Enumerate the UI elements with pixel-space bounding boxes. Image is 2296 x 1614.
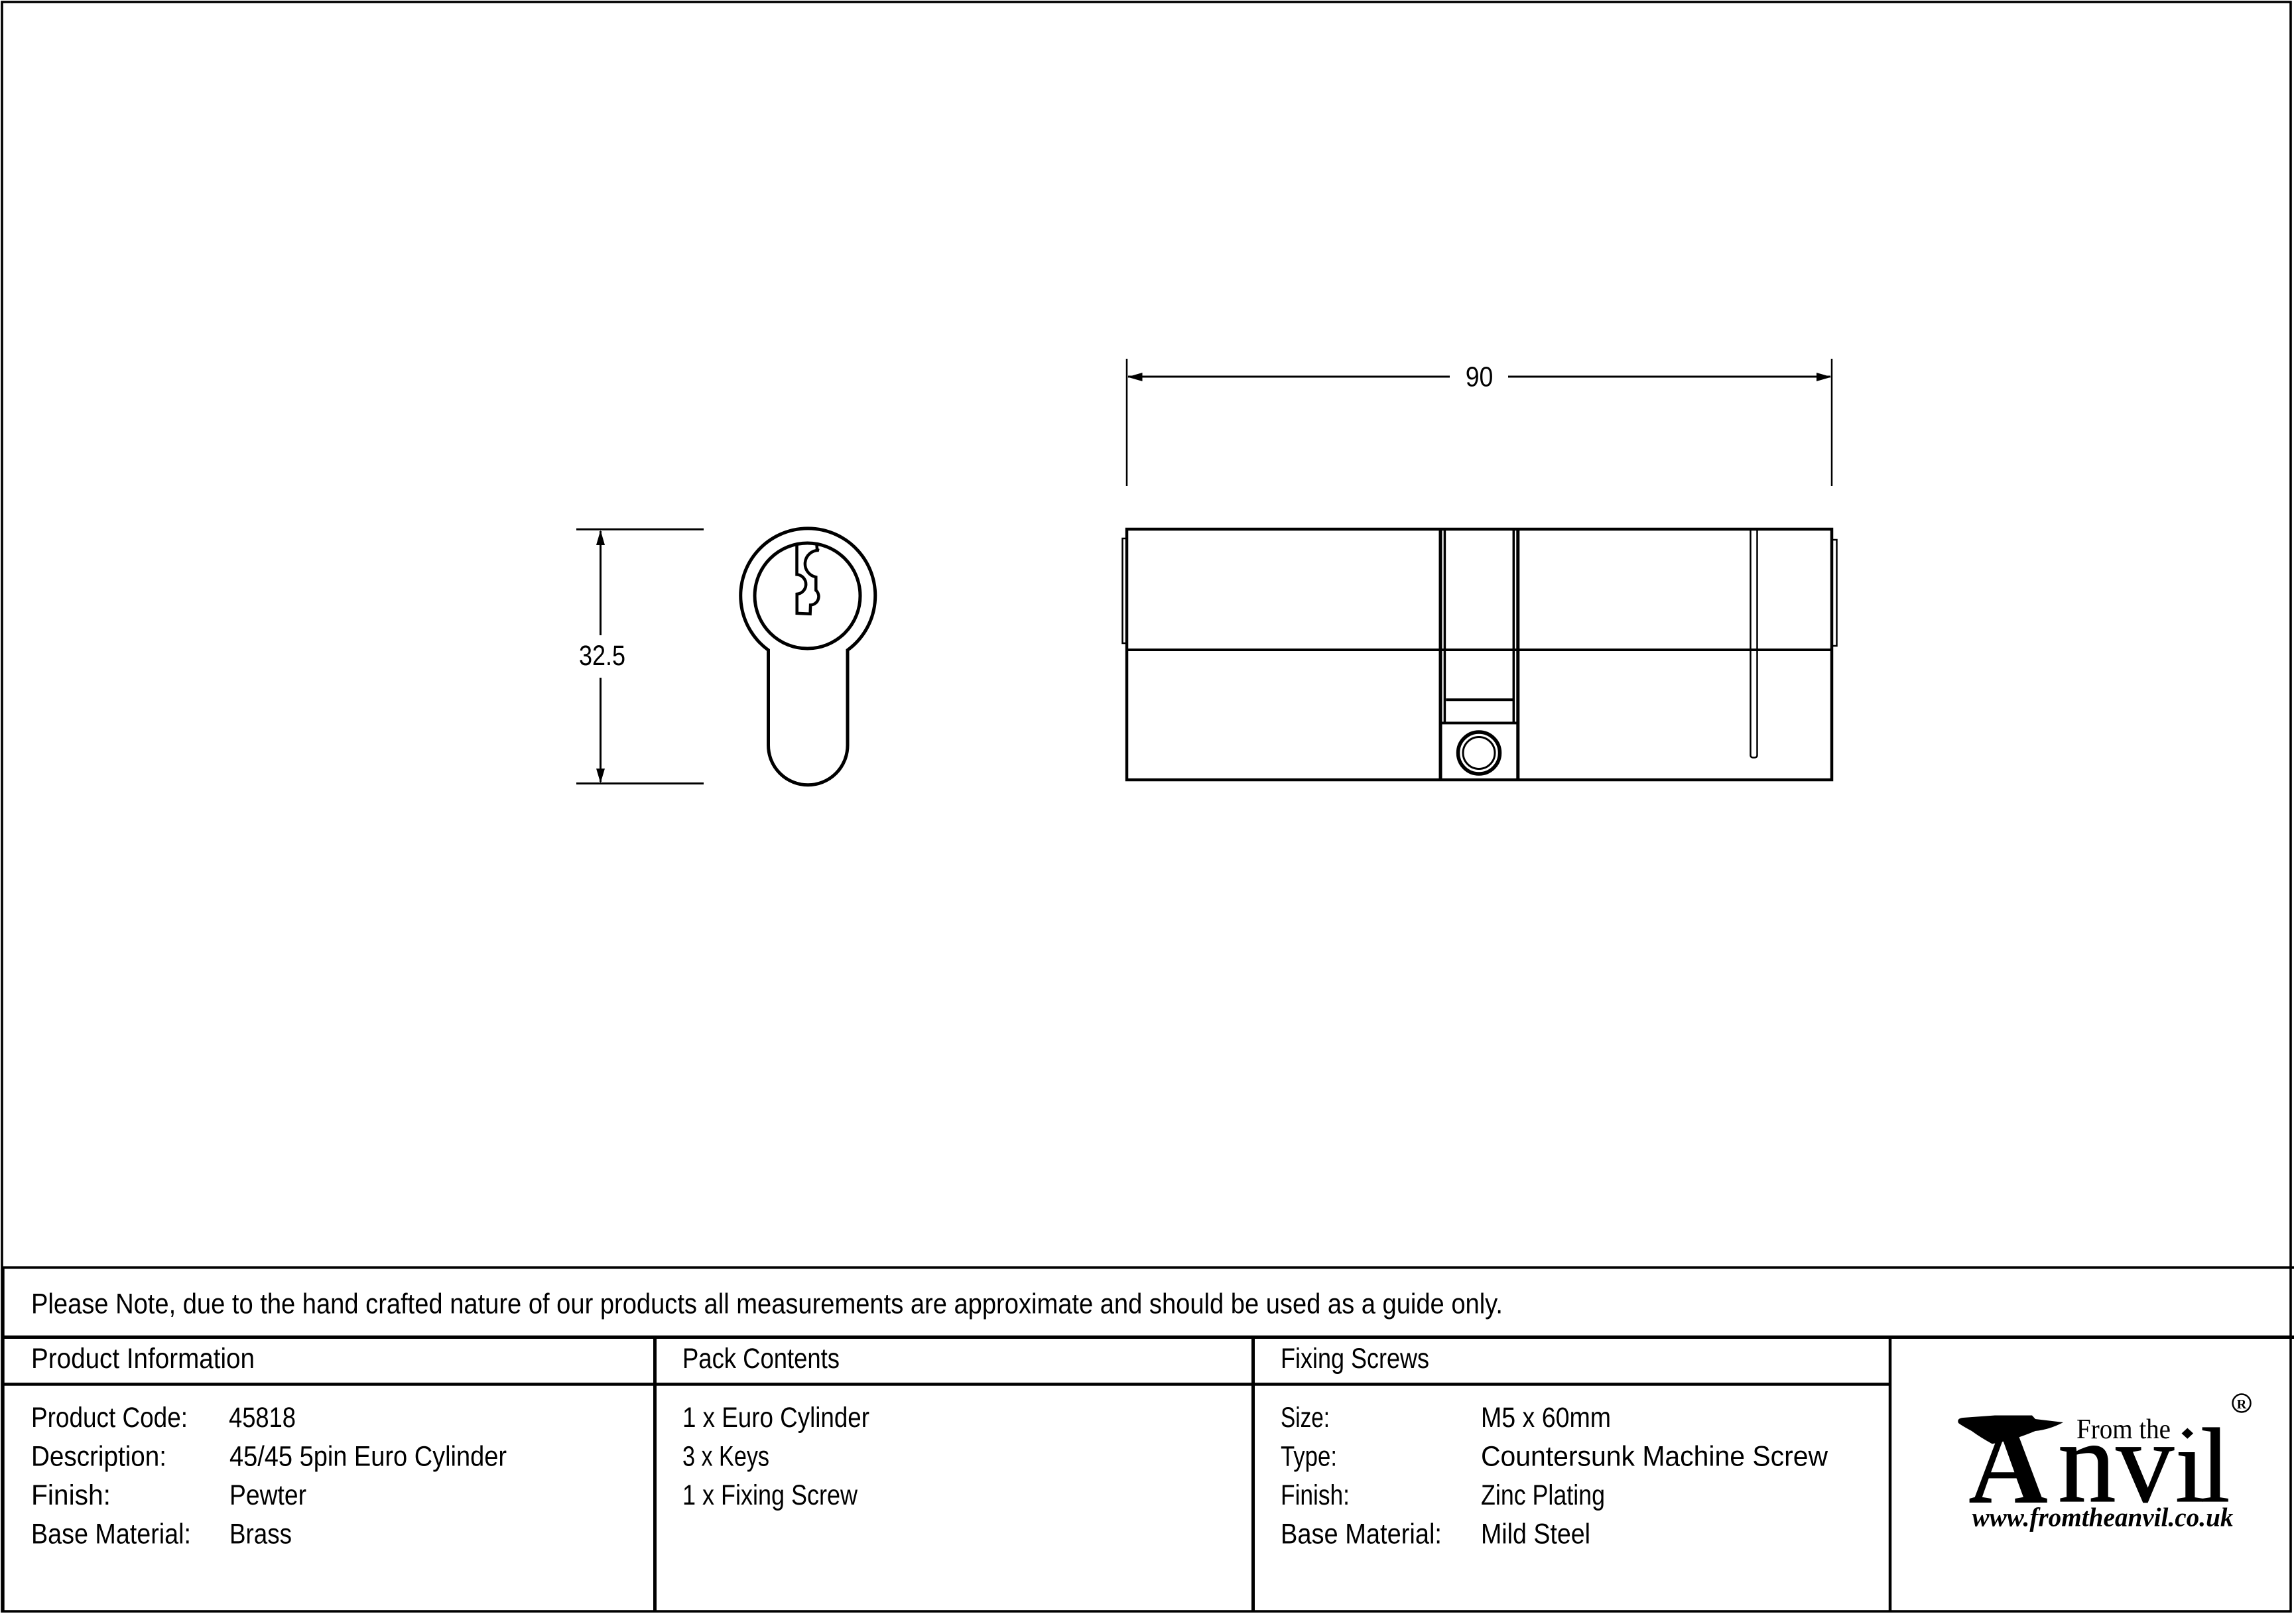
svg-text:1 x Euro Cylinder: 1 x Euro Cylinder [682, 1402, 869, 1434]
svg-text:www.fromtheanvil.co.uk: www.fromtheanvil.co.uk [1972, 1502, 2234, 1532]
svg-text:1 x Fixing Screw: 1 x Fixing Screw [682, 1479, 858, 1511]
svg-text:Fixing Screws: Fixing Screws [1281, 1343, 1429, 1375]
svg-text:Description:: Description: [31, 1441, 166, 1473]
svg-text:R: R [2237, 1397, 2247, 1412]
svg-text:45818: 45818 [229, 1402, 296, 1434]
svg-text:Pack Contents: Pack Contents [682, 1343, 840, 1375]
svg-text:M5 x 60mm: M5 x 60mm [1481, 1402, 1611, 1434]
svg-text:Base Material:: Base Material: [31, 1519, 191, 1550]
svg-text:45/45 5pin Euro Cylinder: 45/45 5pin Euro Cylinder [229, 1441, 507, 1473]
svg-text:Pewter: Pewter [229, 1479, 306, 1511]
svg-text:3 x Keys: 3 x Keys [682, 1441, 769, 1473]
svg-text:Product Information: Product Information [31, 1343, 255, 1375]
svg-text:Finish:: Finish: [31, 1479, 111, 1511]
svg-text:Please Note, due to the hand c: Please Note, due to the hand crafted nat… [31, 1288, 1503, 1320]
svg-text:Product Code:: Product Code: [31, 1402, 188, 1434]
svg-text:90: 90 [1466, 361, 1494, 393]
svg-text:32.5: 32.5 [579, 640, 625, 672]
svg-text:Zinc Plating: Zinc Plating [1481, 1479, 1605, 1511]
svg-text:Finish:: Finish: [1281, 1479, 1350, 1511]
svg-text:Size:: Size: [1281, 1402, 1330, 1434]
svg-text:Brass: Brass [229, 1519, 292, 1550]
svg-text:Type:: Type: [1281, 1441, 1337, 1473]
svg-text:Countersunk Machine Screw: Countersunk Machine Screw [1481, 1441, 1828, 1473]
svg-text:Base Material:: Base Material: [1281, 1519, 1442, 1550]
svg-text:Mild Steel: Mild Steel [1481, 1519, 1590, 1550]
